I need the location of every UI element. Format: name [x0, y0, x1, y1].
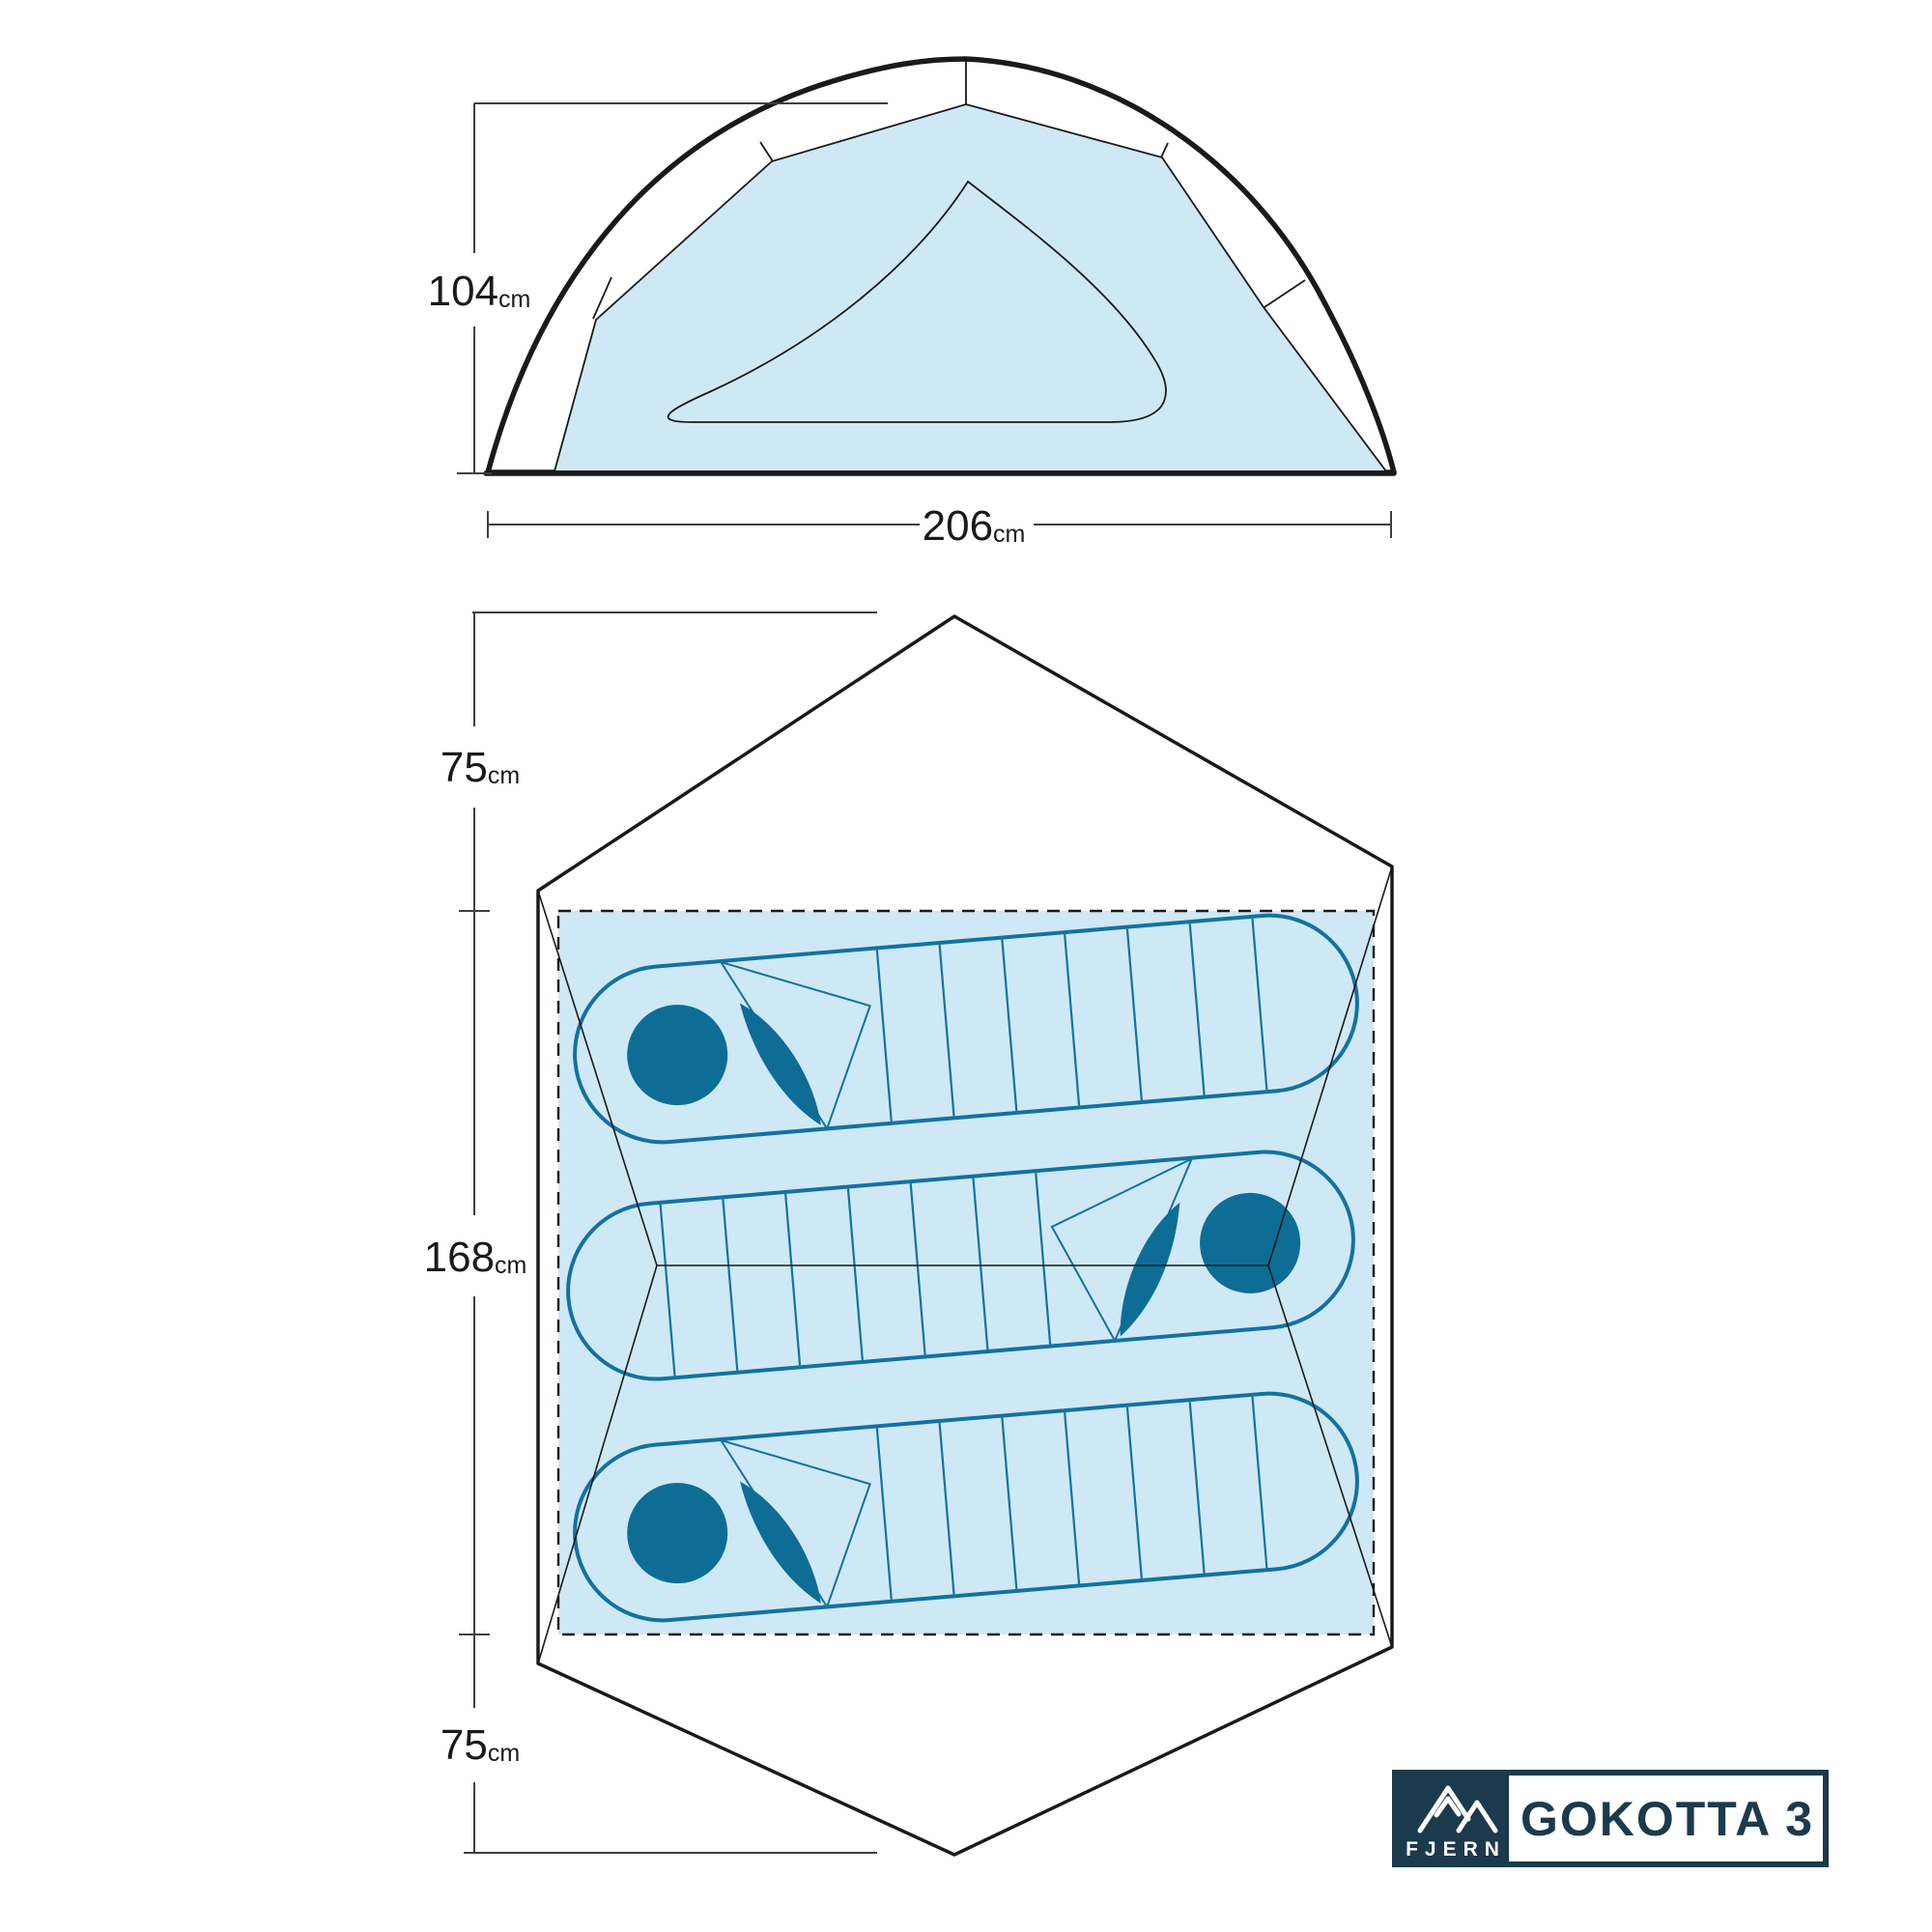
brand-name: FJERN — [1406, 1838, 1506, 1861]
height-label: 104cm — [428, 268, 531, 315]
side-elevation-view: 104cm 206cm — [428, 59, 1394, 550]
floor-plan-view: 75cm 168cm 75cm — [424, 612, 1392, 1855]
width-dimension: 206cm — [488, 502, 1391, 550]
sleeping-bags — [561, 908, 1364, 1627]
rear-vestibule-label: 75cm — [440, 1721, 520, 1769]
inner-length-dimension: 168cm — [424, 911, 527, 1634]
model-name: GOKOTTA 3 — [1520, 1792, 1814, 1846]
tent-spec-diagram: 104cm 206cm — [0, 0, 1932, 1932]
width-label: 206cm — [923, 502, 1026, 550]
front-vestibule-label: 75cm — [440, 744, 520, 791]
brand-plate: FJERN GOKOTTA 3 — [1395, 1773, 1826, 1864]
inner-length-label: 168cm — [424, 1234, 527, 1281]
